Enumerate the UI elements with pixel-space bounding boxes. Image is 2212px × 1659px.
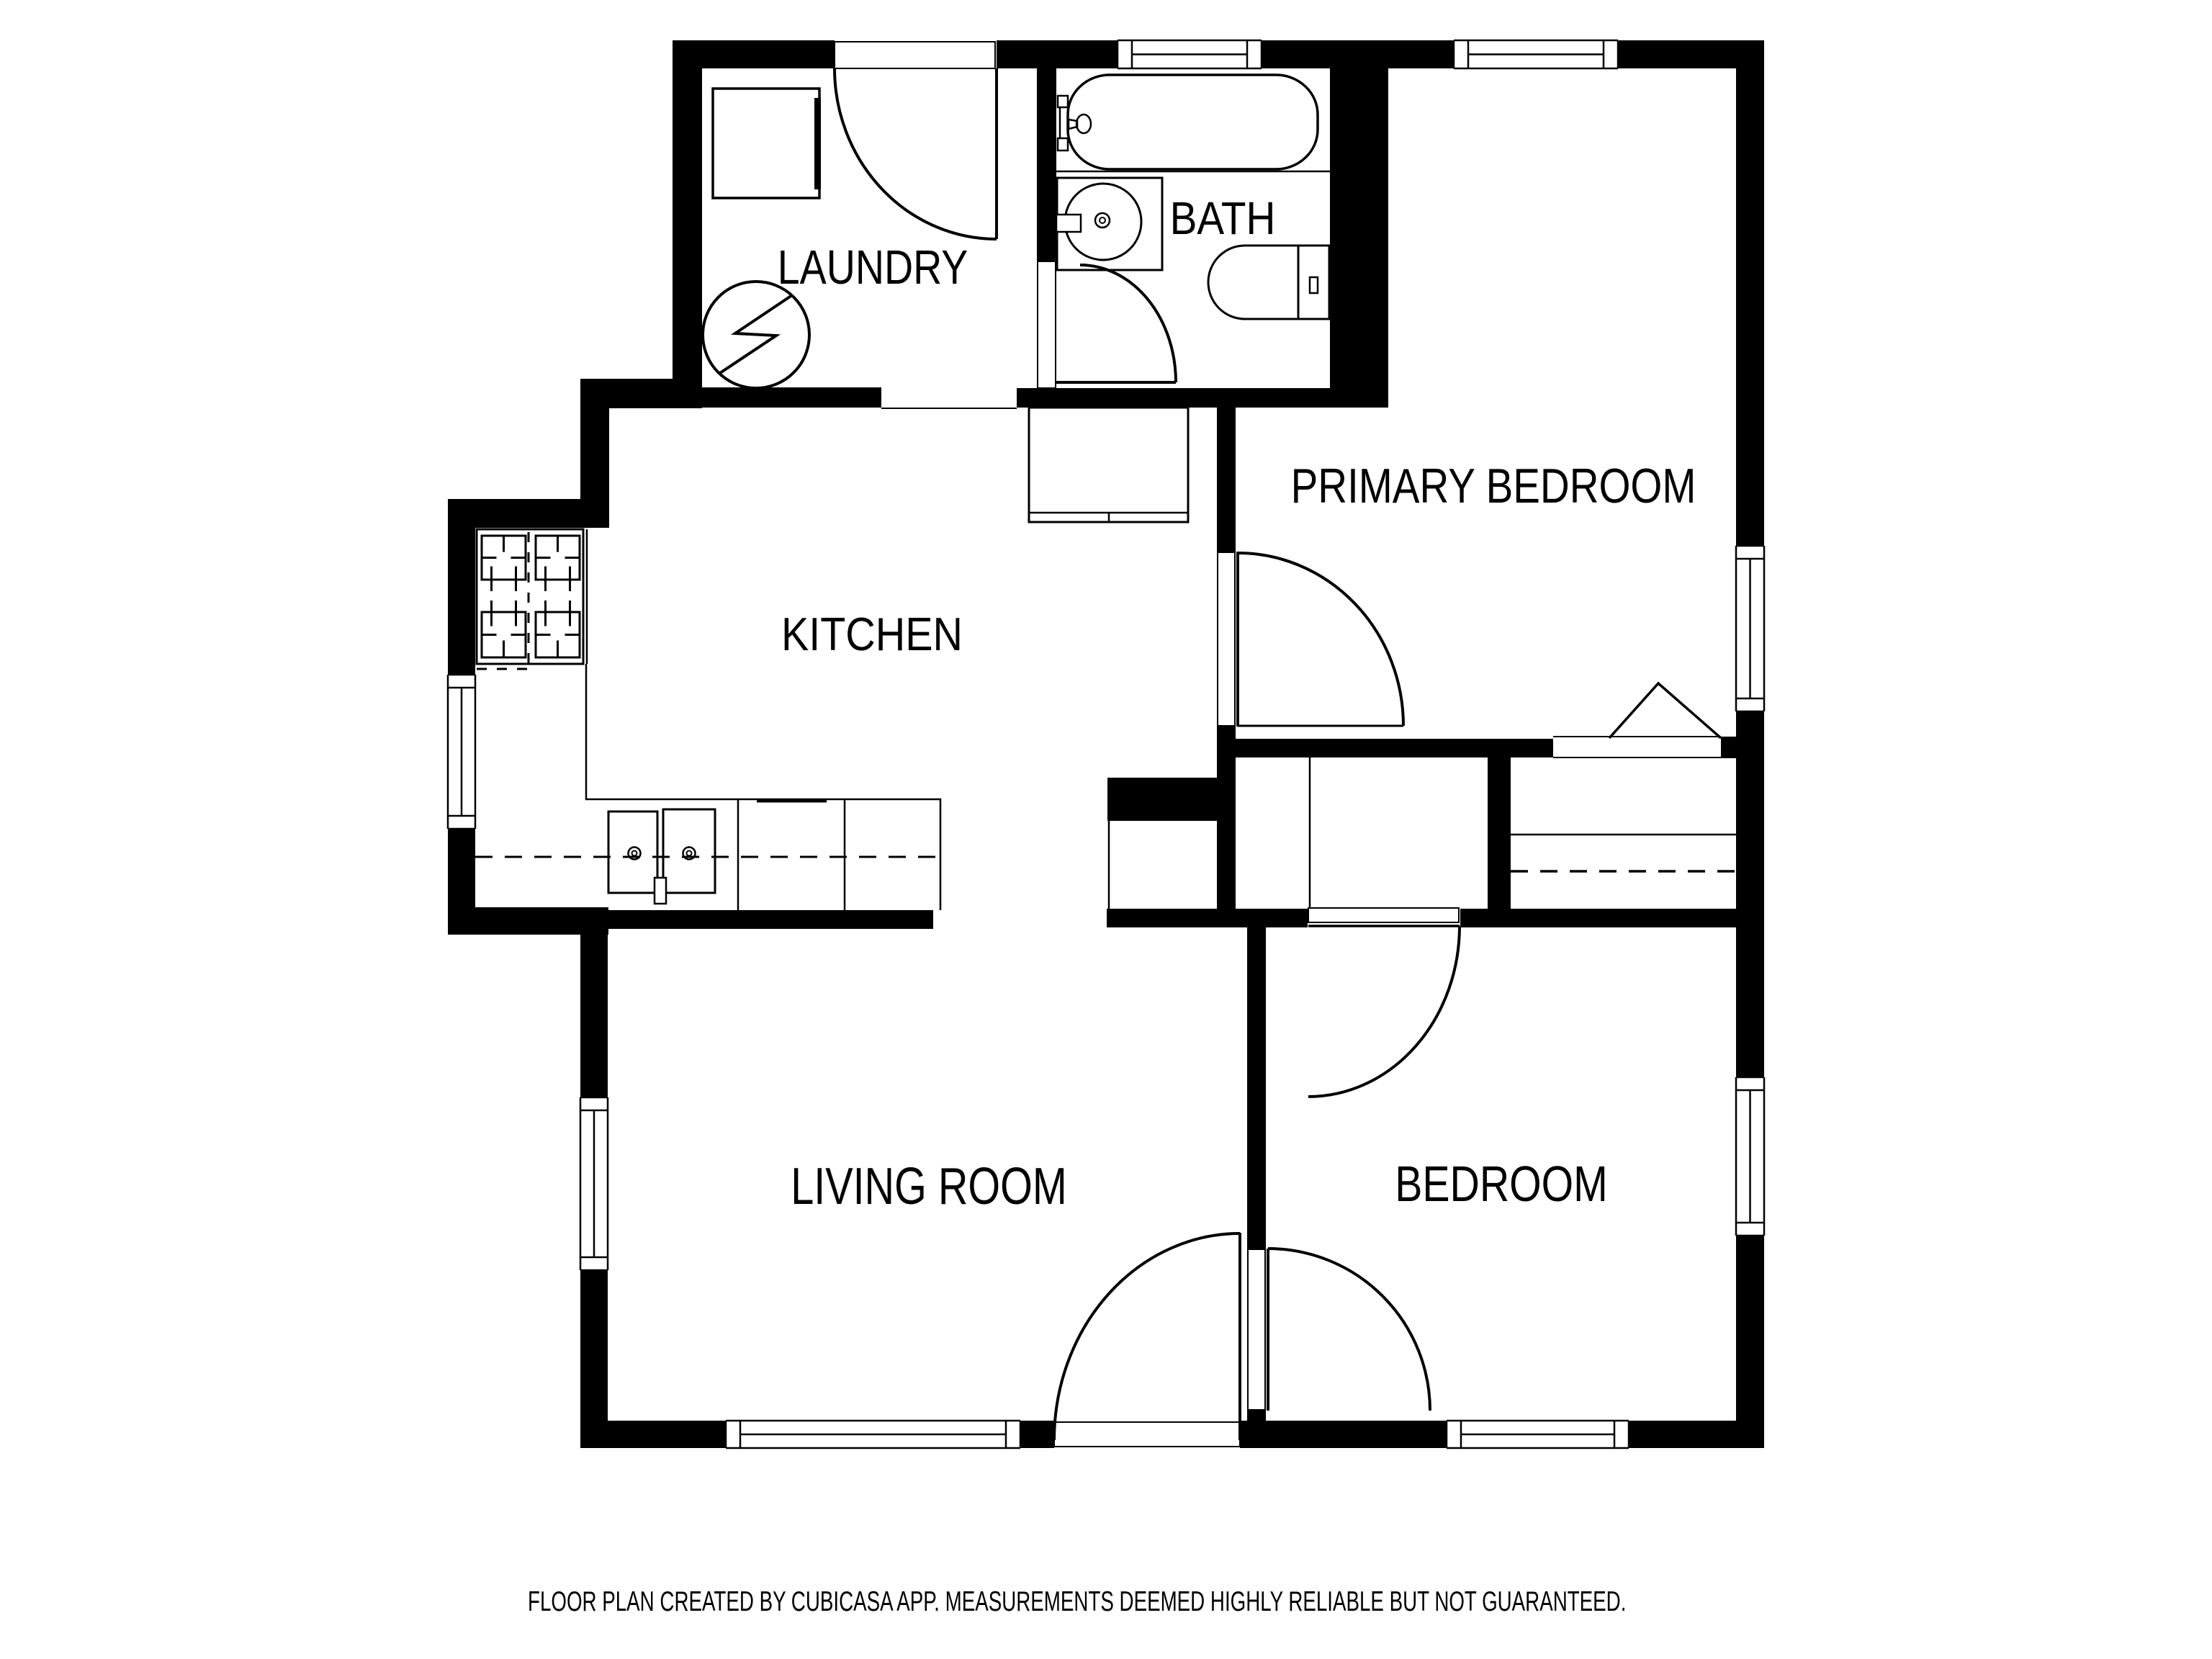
svg-text:BATH: BATH	[1170, 192, 1276, 244]
svg-text:LAUNDRY: LAUNDRY	[778, 240, 968, 295]
svg-text:FLOOR PLAN CREATED BY CUBICASA: FLOOR PLAN CREATED BY CUBICASA APP. MEAS…	[528, 1586, 1626, 1617]
svg-text:PRIMARY BEDROOM: PRIMARY BEDROOM	[1291, 459, 1696, 513]
svg-text:KITCHEN: KITCHEN	[781, 608, 963, 660]
svg-text:BEDROOM: BEDROOM	[1395, 1155, 1607, 1212]
svg-text:LIVING ROOM: LIVING ROOM	[791, 1157, 1067, 1215]
